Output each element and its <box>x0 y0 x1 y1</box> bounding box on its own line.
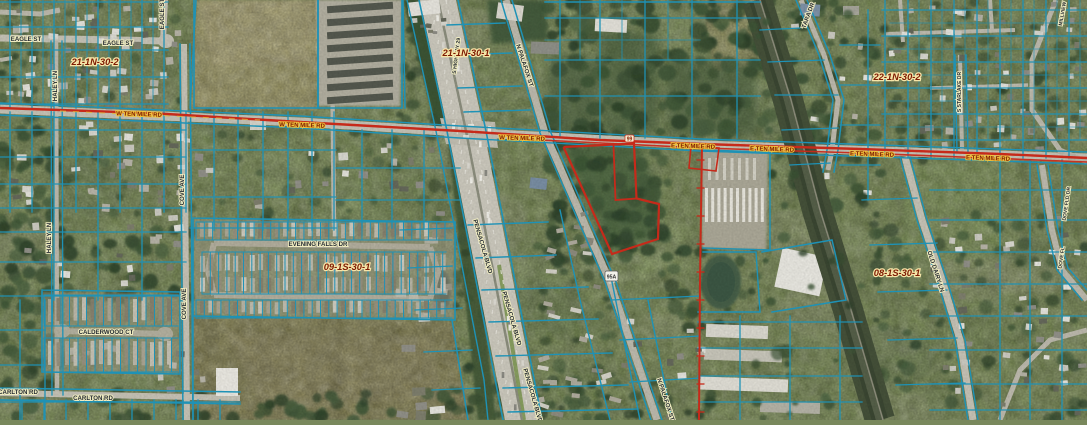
svg-text:HALEY LN: HALEY LN <box>52 71 59 101</box>
svg-text:EAGLE ST: EAGLE ST <box>159 0 166 29</box>
svg-text:95A: 95A <box>607 275 617 281</box>
svg-text:99: 99 <box>627 137 633 143</box>
svg-text:HALEY LN: HALEY LN <box>46 223 53 253</box>
svg-text:08-1S-30-1: 08-1S-30-1 <box>874 268 921 278</box>
svg-text:CARLTON RD: CARLTON RD <box>0 389 38 396</box>
svg-text:COVE AVE: COVE AVE <box>181 289 188 320</box>
svg-text:21-1N-30-2: 21-1N-30-2 <box>70 57 119 67</box>
svg-text:COVE AVE: COVE AVE <box>179 175 186 206</box>
svg-text:EAGLE ST: EAGLE ST <box>103 40 134 47</box>
svg-text:CARLTON RD: CARLTON RD <box>73 395 113 402</box>
svg-text:22-1N-30-2: 22-1N-30-2 <box>872 72 921 82</box>
svg-text:09-1S-30-1: 09-1S-30-1 <box>324 262 371 272</box>
svg-text:S STARLAKE DR: S STARLAKE DR <box>957 72 963 113</box>
svg-text:CALDERWOOD CT: CALDERWOOD CT <box>79 329 134 336</box>
svg-text:EAGLE ST: EAGLE ST <box>11 36 42 43</box>
svg-text:EVENING FALLS DR: EVENING FALLS DR <box>289 241 349 248</box>
svg-text:21-1N-30-1: 21-1N-30-1 <box>441 48 489 58</box>
